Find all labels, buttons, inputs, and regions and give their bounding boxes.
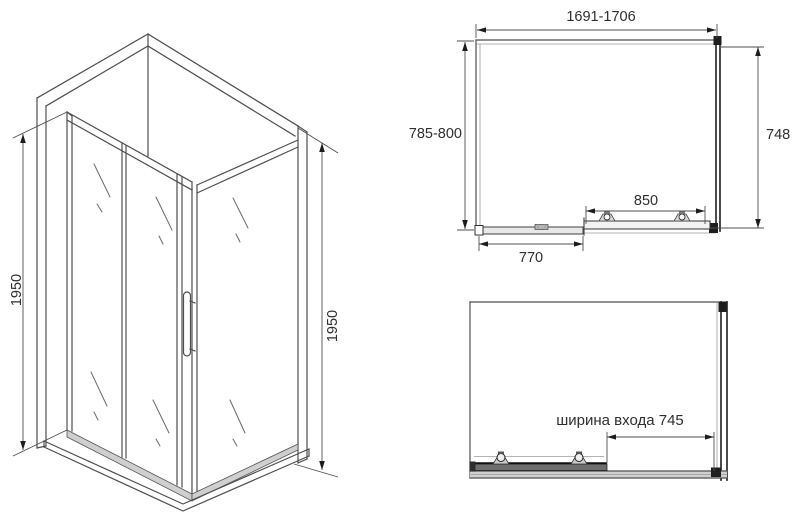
roller-icon: [571, 452, 587, 465]
front-view: ширина входа 745: [470, 302, 728, 480]
dimension-depth: 785-800: [409, 41, 474, 230]
dimension-overall-width: 1691-1706: [476, 9, 717, 38]
roller-icon: [674, 211, 690, 221]
height-left-label: 1950: [9, 274, 25, 306]
plan-sliding-door: [584, 211, 710, 235]
plan-fixed-panel: [475, 225, 583, 236]
plan-right-wall-profile: [709, 36, 722, 233]
height-right-label: 1950: [325, 310, 341, 342]
side-depth-label: 748: [766, 127, 790, 143]
door-handle: [184, 292, 196, 356]
shower-enclosure-technical-drawing: 1950 1950: [0, 0, 800, 519]
plan-view: 1691-1706 785-800 748 850: [409, 9, 790, 266]
roller-icon: [599, 211, 615, 221]
entrance-width-label: ширина входа 745: [556, 412, 684, 429]
depth-label: 785-800: [409, 126, 462, 142]
dimension-height-right: 1950: [294, 128, 341, 477]
glass-reflection-marks: [91, 164, 248, 446]
fixed-panel-label: 770: [519, 250, 543, 266]
overall-width-label: 1691-1706: [566, 9, 635, 25]
drawing-svg: 1950 1950: [0, 0, 800, 519]
front-outline: [470, 302, 727, 480]
glass-assembly: [67, 112, 298, 497]
outer-frame: [37, 34, 307, 463]
plan-outline: [476, 40, 718, 233]
dimension-side-depth: 748: [710, 47, 790, 228]
front-sliding-door: [470, 452, 608, 472]
dimension-fixed-panel: 770: [479, 236, 583, 266]
door-width-label: 850: [634, 193, 658, 209]
isometric-view: 1950 1950: [9, 34, 341, 511]
dimension-height-left: 1950: [9, 112, 67, 456]
roller-icon: [493, 452, 509, 465]
